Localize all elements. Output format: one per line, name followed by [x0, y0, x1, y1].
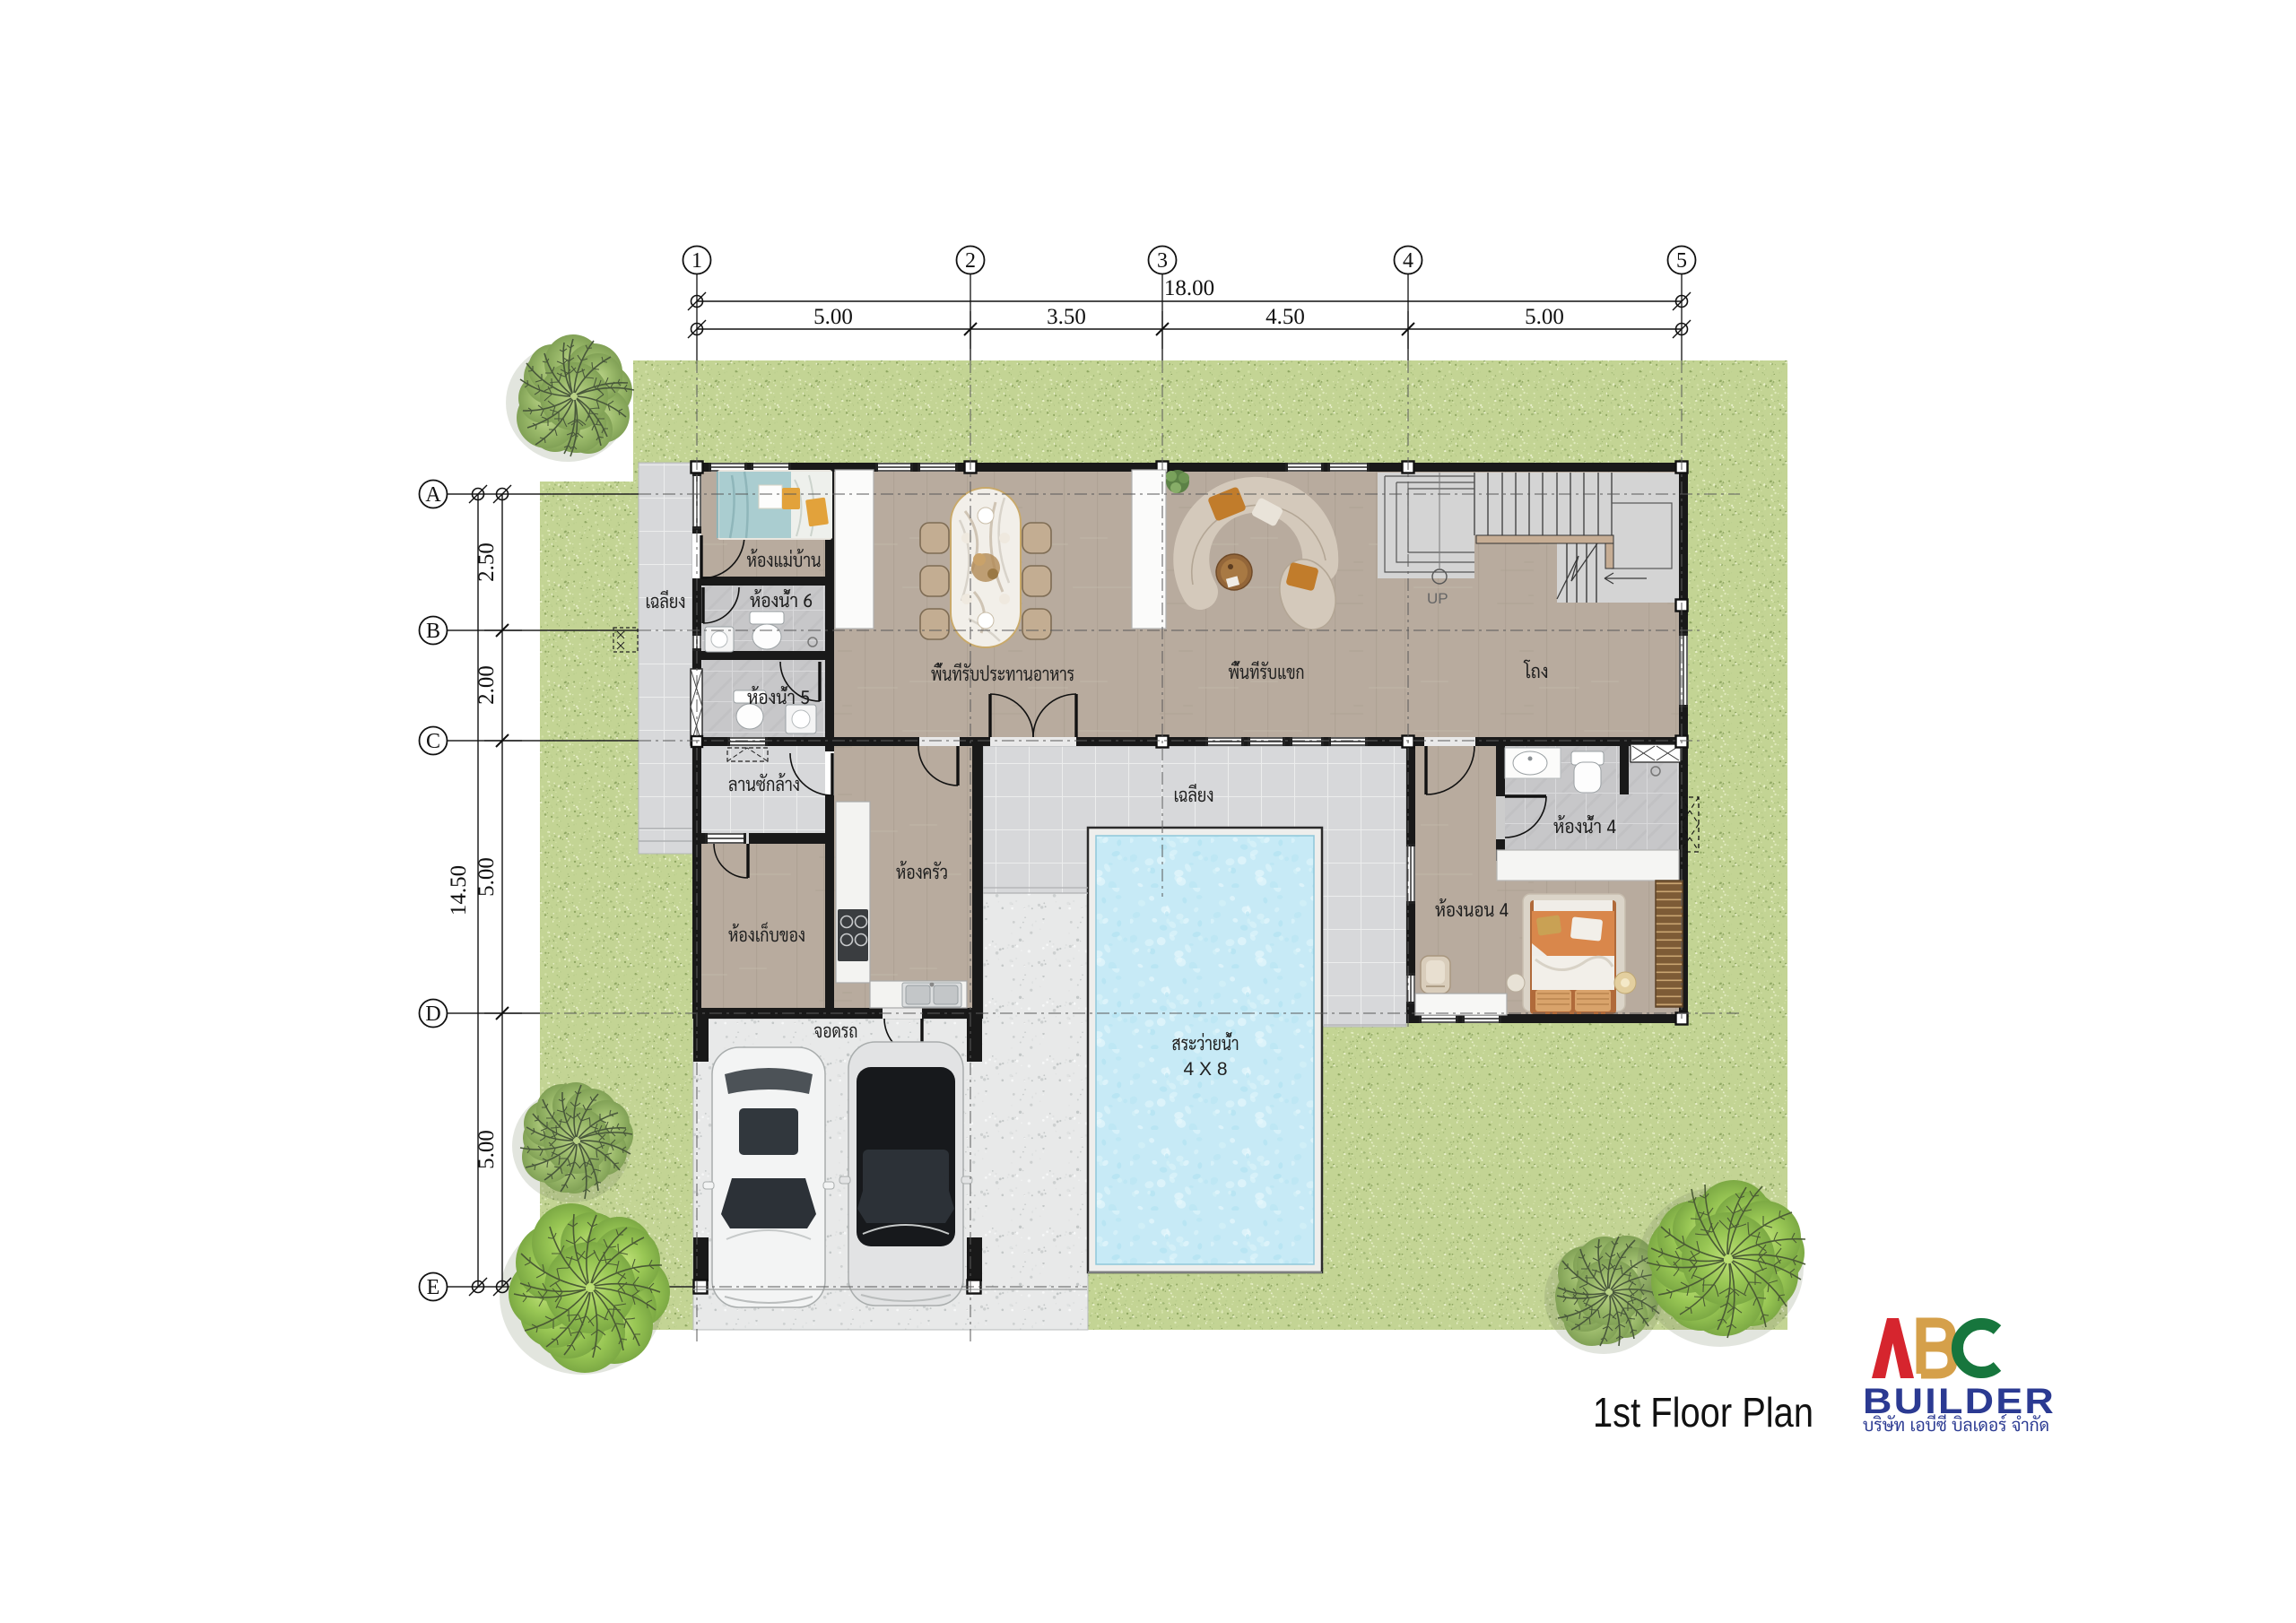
svg-text:5: 5	[1676, 249, 1687, 273]
svg-text:5.00: 5.00	[1525, 305, 1564, 329]
svg-text:3: 3	[1157, 249, 1168, 273]
svg-text:1: 1	[691, 249, 702, 273]
svg-text:D: D	[425, 1002, 440, 1026]
svg-text:BUILDER: BUILDER	[1863, 1382, 2056, 1421]
svg-text:5.00: 5.00	[474, 857, 499, 897]
svg-text:14.50: 14.50	[447, 865, 471, 916]
svg-text:1st Floor Plan: 1st Floor Plan	[1593, 1389, 1813, 1436]
svg-text:5.00: 5.00	[813, 305, 853, 329]
svg-text:4 X 8: 4 X 8	[1183, 1059, 1227, 1080]
svg-text:5.00: 5.00	[474, 1130, 499, 1169]
svg-text:C: C	[426, 730, 440, 753]
svg-text:B: B	[426, 620, 440, 643]
svg-text:4.50: 4.50	[1265, 305, 1305, 329]
svg-text:2.50: 2.50	[474, 542, 499, 582]
svg-text:18.00: 18.00	[1164, 276, 1214, 300]
svg-text:UP: UP	[1427, 590, 1448, 607]
svg-text:A: A	[425, 483, 441, 507]
svg-text:2: 2	[965, 249, 976, 273]
svg-text:4: 4	[1403, 249, 1413, 273]
svg-text:2.00: 2.00	[474, 665, 499, 705]
svg-text:E: E	[427, 1276, 440, 1299]
svg-text:3.50: 3.50	[1047, 305, 1086, 329]
